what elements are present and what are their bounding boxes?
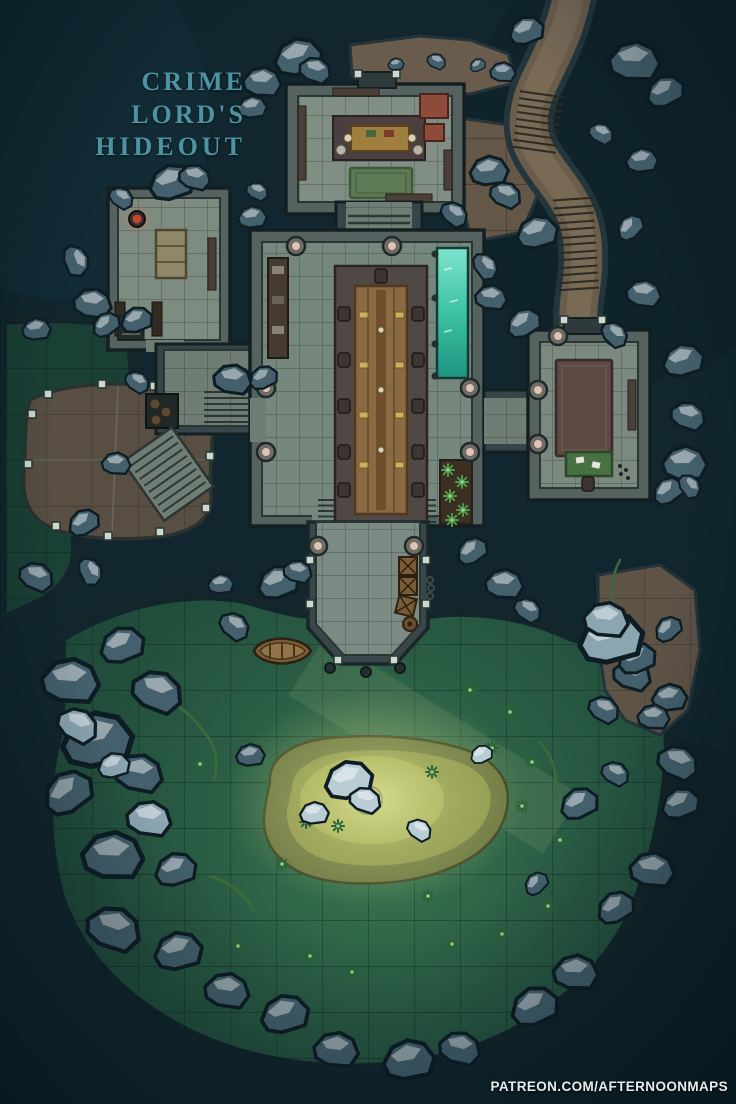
map-artwork <box>0 0 736 1104</box>
map-title-line2: HIDEOUT <box>36 131 246 164</box>
attribution: PATREON.COM/AFTERNOONMAPS <box>491 1079 729 1094</box>
map-title: CRIME LORD'S HIDEOUT <box>36 66 246 164</box>
map-title-line1: CRIME LORD'S <box>36 66 246 131</box>
battle-map: CRIME LORD'S HIDEOUT PATREON.COM/AFTERNO… <box>0 0 736 1104</box>
vignette-overlay <box>0 0 736 1104</box>
